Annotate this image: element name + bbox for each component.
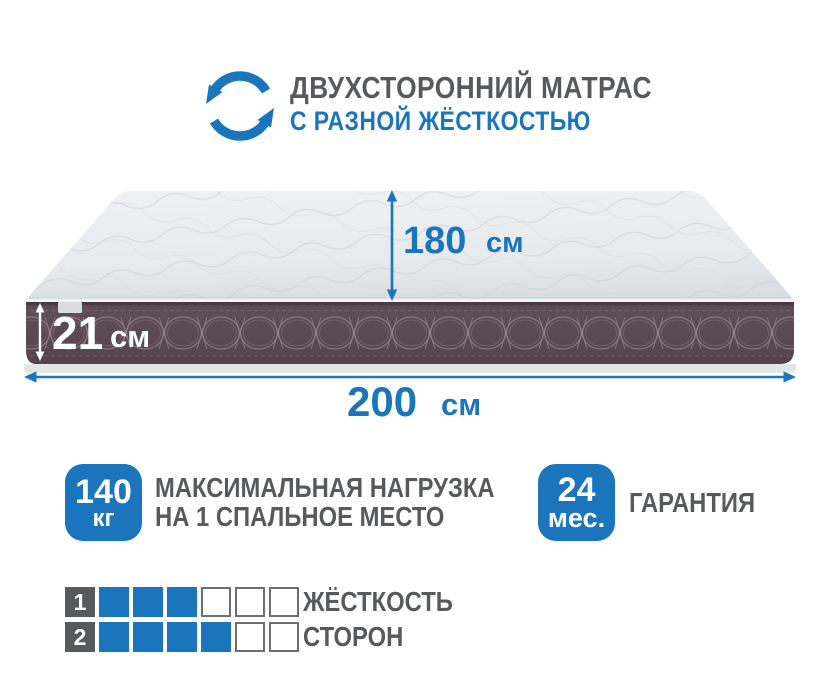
- rating-cell-filled: [167, 587, 197, 617]
- rating-cell-empty: [235, 587, 265, 617]
- rating-cell-filled: [99, 587, 129, 617]
- firmness-label-line1: ЖЁСТКОСТЬ: [303, 587, 453, 617]
- rating-cell-filled: [201, 622, 231, 652]
- width-unit: см: [441, 387, 481, 422]
- firmness-cells-side-2: [99, 622, 303, 652]
- mattress-illustration: 180 см 21 см 200 см: [0, 0, 816, 440]
- side-number-badge: 2: [65, 622, 95, 652]
- firmness-row-side-2: 2: [65, 622, 303, 652]
- rating-cell-filled: [167, 622, 197, 652]
- rating-cell-empty: [201, 587, 231, 617]
- firmness-row-side-1: 1: [65, 587, 303, 617]
- rating-cell-empty: [269, 587, 299, 617]
- rating-cell-filled: [99, 622, 129, 652]
- warranty-value: 24: [558, 474, 596, 506]
- mattress-bottom-edge: [24, 364, 796, 373]
- rating-cell-filled: [133, 587, 163, 617]
- side-number-badge: 1: [65, 587, 95, 617]
- width-value: 200: [347, 378, 417, 425]
- firmness-label-line2: СТОРОН: [303, 622, 403, 652]
- depth-value: 180: [403, 220, 466, 262]
- max-load-value: 140: [75, 476, 132, 508]
- max-load-unit: кг: [92, 508, 114, 530]
- depth-unit: см: [486, 227, 524, 259]
- warranty-label: ГАРАНТИЯ: [629, 488, 755, 517]
- rating-cell-filled: [133, 622, 163, 652]
- warranty-badge: 24 мес.: [538, 464, 615, 541]
- height-unit: см: [110, 319, 150, 354]
- rating-cell-empty: [269, 622, 299, 652]
- max-load-description: МАКСИМАЛЬНАЯ НАГРУЗКА НА 1 СПАЛЬНОЕ МЕСТ…: [155, 473, 495, 531]
- max-load-line1: МАКСИМАЛЬНАЯ НАГРУЗКА: [155, 473, 495, 502]
- height-value: 21: [52, 307, 103, 359]
- rating-cell-empty: [235, 622, 265, 652]
- max-load-badge: 140 кг: [65, 464, 142, 541]
- max-load-line2: НА 1 СПАЛЬНОЕ МЕСТО: [155, 502, 495, 531]
- width-dimension: 200 см: [24, 371, 796, 425]
- warranty-unit: мес.: [548, 506, 605, 531]
- firmness-cells-side-1: [99, 587, 303, 617]
